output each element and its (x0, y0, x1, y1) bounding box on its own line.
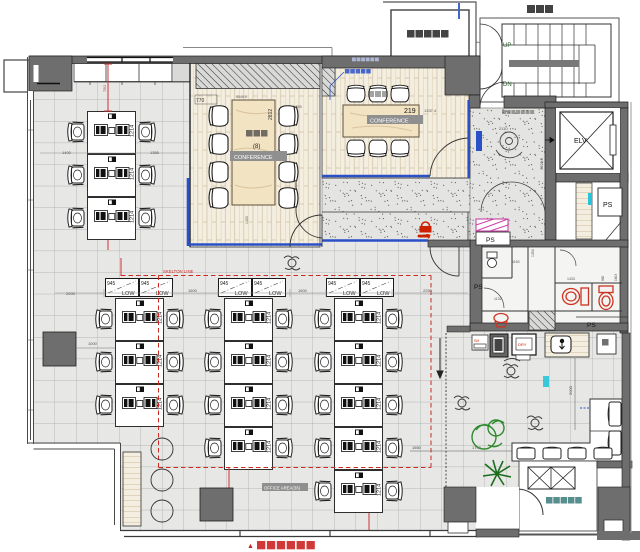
svg-text:PS: PS (474, 284, 483, 291)
svg-text:CONFERENCE: CONFERENCE (234, 155, 273, 161)
svg-text:PS: PS (587, 322, 596, 329)
svg-text:1000: 1000 (88, 341, 98, 346)
svg-text:security: security (418, 234, 430, 238)
svg-text:CONFERENCE: CONFERENCE (370, 119, 409, 125)
svg-text:OFFICE AREA(36): OFFICE AREA(36) (264, 485, 301, 490)
svg-text:▲: ▲ (247, 543, 254, 550)
svg-text:(8): (8) (253, 144, 260, 150)
svg-text:860: 860 (601, 275, 605, 281)
svg-text:SH: SH (474, 339, 480, 343)
svg-text:DRY: DRY (518, 342, 527, 347)
svg-text:770: 770 (196, 98, 205, 104)
svg-text:2250: 2250 (423, 288, 433, 293)
svg-text:PS: PS (603, 202, 613, 209)
svg-text:1,200: 1,200 (293, 105, 302, 109)
svg-text:1350: 1350 (531, 249, 535, 257)
svg-text:1337.4: 1337.4 (424, 108, 437, 113)
svg-text:1603: 1603 (614, 274, 618, 281)
svg-text:2110: 2110 (499, 126, 508, 131)
svg-text:DN: DN (503, 82, 512, 88)
svg-text:1132: 1132 (494, 297, 502, 301)
svg-text:750: 750 (102, 85, 107, 92)
svg-text:1355: 1355 (150, 150, 160, 155)
svg-text:2812: 2812 (268, 109, 274, 120)
svg-text:1400: 1400 (245, 216, 249, 224)
svg-text:1433: 1433 (567, 277, 575, 281)
svg-text:2000: 2000 (568, 385, 573, 395)
svg-text:PS: PS (486, 237, 495, 244)
svg-text:ELV: ELV (574, 138, 587, 145)
svg-text:UP: UP (503, 43, 511, 49)
svg-text:1400: 1400 (62, 150, 72, 155)
svg-text:SKELTON LINE: SKELTON LINE (163, 269, 194, 274)
svg-text:219: 219 (404, 108, 416, 115)
svg-text:2828.5: 2828.5 (539, 157, 544, 170)
svg-text:4049.4: 4049.4 (236, 95, 247, 99)
svg-text:2200: 2200 (66, 291, 76, 296)
svg-text:1600: 1600 (298, 288, 308, 293)
svg-text:1150: 1150 (512, 260, 520, 264)
svg-text:1550: 1550 (412, 445, 422, 450)
svg-text:1600: 1600 (188, 288, 198, 293)
